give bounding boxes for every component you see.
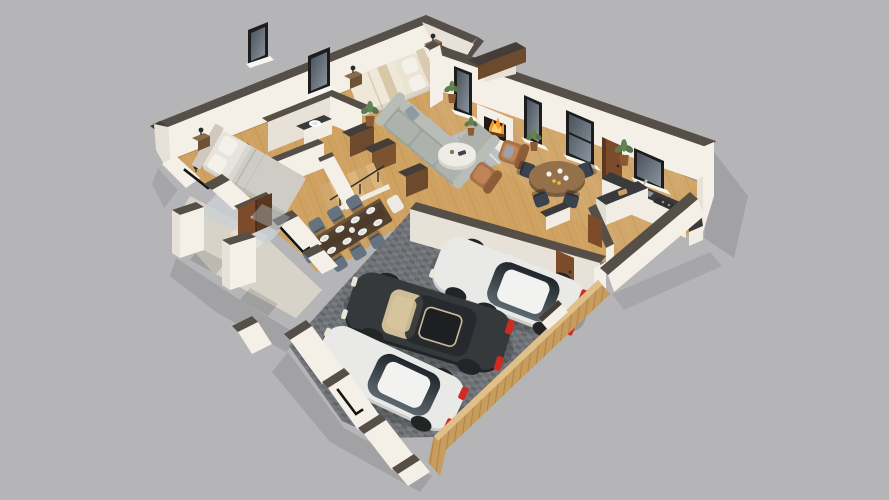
round-coffee-table — [438, 143, 476, 171]
floor-plan-canvas — [0, 0, 889, 500]
porch-pillar — [172, 202, 204, 258]
porch-pillar — [222, 232, 256, 290]
round-table — [529, 161, 585, 193]
floor-plan-render — [0, 0, 889, 500]
